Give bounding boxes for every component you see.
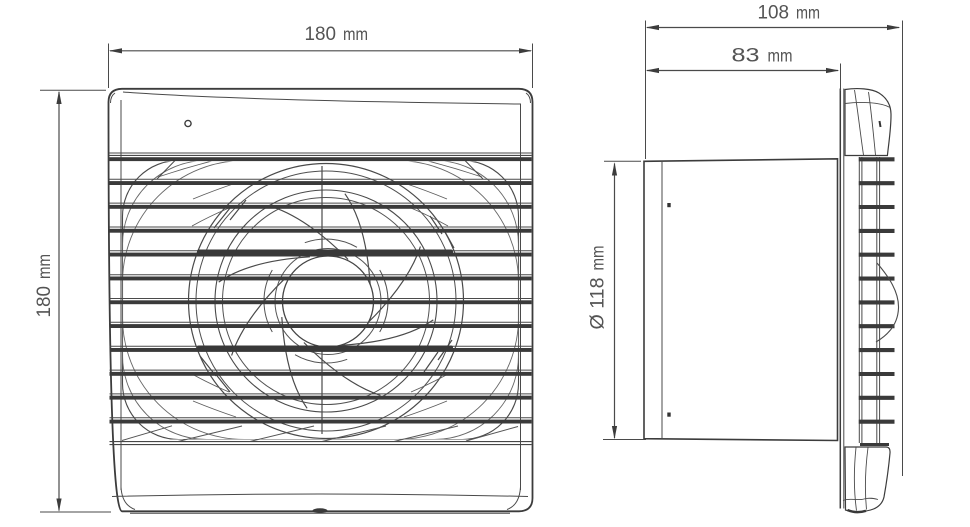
svg-text:83: 83 xyxy=(732,45,760,67)
svg-text:180: 180 xyxy=(33,286,55,318)
svg-text:108: 108 xyxy=(758,2,790,24)
svg-text:mm: mm xyxy=(796,3,820,23)
svg-text:mm: mm xyxy=(768,46,793,66)
svg-text:180: 180 xyxy=(305,23,337,45)
svg-text:mm: mm xyxy=(343,24,368,44)
svg-text:mm: mm xyxy=(588,246,608,271)
svg-text:Ø 118: Ø 118 xyxy=(587,278,609,330)
svg-text:mm: mm xyxy=(34,254,54,279)
